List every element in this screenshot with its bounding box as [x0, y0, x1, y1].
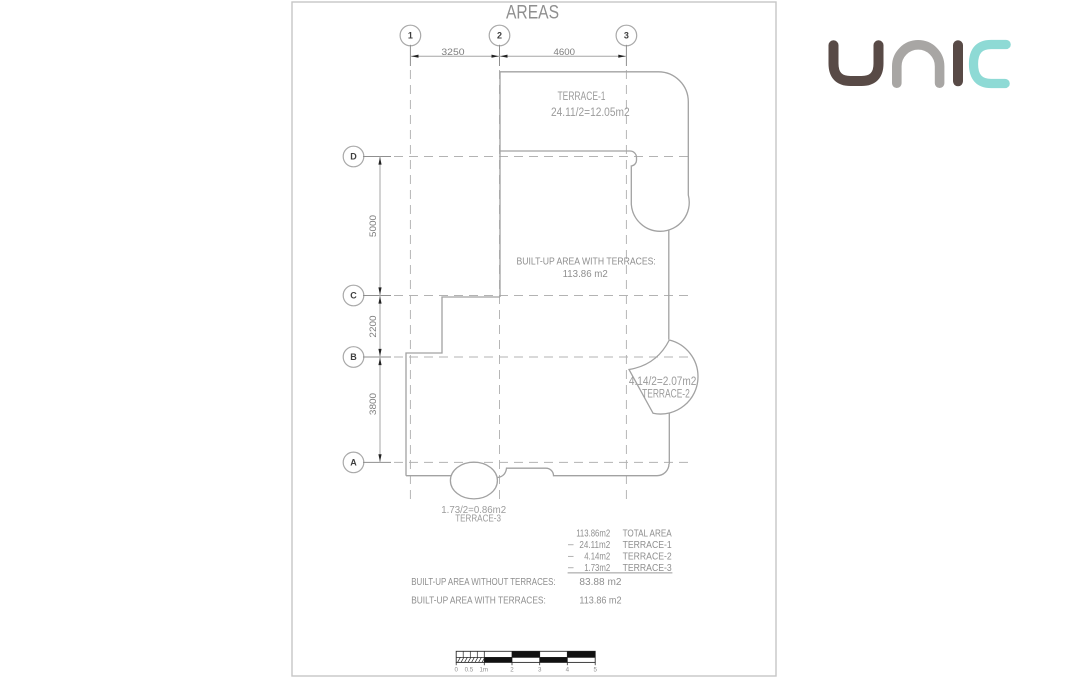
svg-text:3800: 3800 — [368, 393, 378, 415]
svg-text:4.14/2=2.07m2: 4.14/2=2.07m2 — [629, 376, 697, 388]
svg-text:TERRACE-2: TERRACE-2 — [623, 552, 672, 563]
svg-text:113.86m2: 113.86m2 — [576, 528, 610, 539]
svg-text:BUILT-UP AREA WITH TERRACES:: BUILT-UP AREA WITH TERRACES: — [411, 595, 546, 606]
svg-text:113.86 m2: 113.86 m2 — [563, 269, 609, 280]
svg-text:TERRACE-3: TERRACE-3 — [623, 563, 672, 574]
svg-text:5: 5 — [593, 666, 597, 673]
svg-text:2200: 2200 — [368, 315, 378, 337]
svg-text:–: – — [568, 551, 574, 562]
svg-text:3250: 3250 — [441, 47, 464, 57]
svg-text:–: – — [568, 562, 574, 573]
svg-text:2: 2 — [497, 30, 502, 40]
svg-text:TERRACE-1: TERRACE-1 — [558, 91, 606, 103]
svg-text:3: 3 — [538, 666, 542, 673]
svg-text:1.73m2: 1.73m2 — [584, 563, 610, 574]
svg-text:0.5: 0.5 — [465, 666, 474, 673]
svg-text:B: B — [350, 352, 357, 362]
svg-text:24.11/2=12.05m2: 24.11/2=12.05m2 — [551, 107, 630, 119]
svg-text:BUILT-UP AREA WITH TERRACES:: BUILT-UP AREA WITH TERRACES: — [517, 256, 656, 267]
svg-text:113.86 m2: 113.86 m2 — [579, 595, 621, 606]
svg-text:4: 4 — [566, 666, 570, 673]
svg-text:1m: 1m — [479, 666, 488, 673]
svg-text:C: C — [350, 290, 357, 300]
svg-text:TERRACE-2: TERRACE-2 — [642, 389, 690, 401]
svg-text:TERRACE-3: TERRACE-3 — [455, 514, 501, 525]
svg-text:3: 3 — [624, 30, 629, 40]
svg-text:4600: 4600 — [554, 47, 576, 57]
svg-text:24.11m2: 24.11m2 — [579, 540, 610, 551]
svg-text:–: – — [568, 540, 574, 551]
svg-text:2: 2 — [510, 666, 514, 673]
svg-text:D: D — [350, 151, 357, 161]
svg-text:A: A — [350, 457, 357, 467]
svg-text:TOTAL AREA: TOTAL AREA — [623, 528, 672, 539]
svg-text:5000: 5000 — [368, 215, 378, 237]
svg-text:4.14m2: 4.14m2 — [584, 552, 610, 563]
svg-text:BUILT-UP AREA WITHOUT TERRACES: BUILT-UP AREA WITHOUT TERRACES: — [411, 577, 555, 588]
svg-text:0: 0 — [454, 666, 458, 673]
svg-text:83.88 m2: 83.88 m2 — [579, 577, 622, 588]
svg-text:TERRACE-1: TERRACE-1 — [623, 540, 672, 551]
svg-text:AREAS: AREAS — [506, 3, 559, 24]
svg-text:1: 1 — [408, 30, 413, 40]
